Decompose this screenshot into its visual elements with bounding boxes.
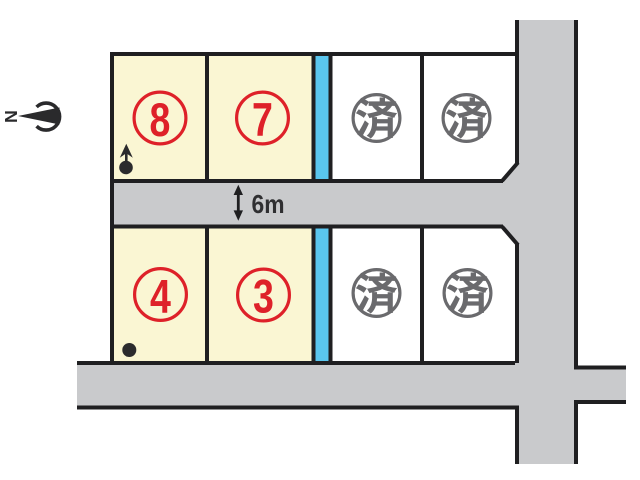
svg-text:6m: 6m <box>252 189 285 219</box>
svg-text:7: 7 <box>252 94 273 147</box>
svg-text:4: 4 <box>150 270 171 323</box>
svg-text:N: N <box>1 110 21 123</box>
svg-text:3: 3 <box>253 270 274 323</box>
svg-text:8: 8 <box>150 94 171 147</box>
